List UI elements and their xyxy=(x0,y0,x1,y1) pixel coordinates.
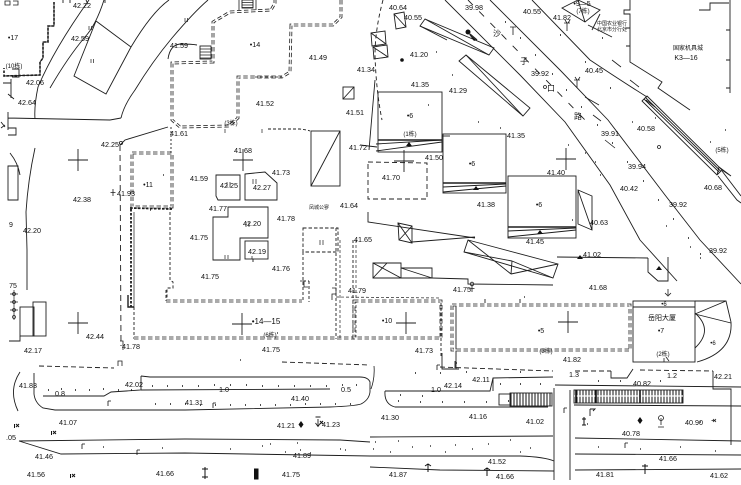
svg-text:39.94: 39.94 xyxy=(628,162,646,171)
svg-text:•6: •6 xyxy=(469,161,475,168)
svg-text:42.25: 42.25 xyxy=(220,181,238,190)
svg-text:41.51: 41.51 xyxy=(346,108,364,117)
svg-text:41.49: 41.49 xyxy=(309,53,327,62)
svg-text:40.58: 40.58 xyxy=(637,124,655,133)
svg-text:路: 路 xyxy=(574,111,582,121)
svg-text:41.75: 41.75 xyxy=(453,285,471,294)
svg-text:0.8: 0.8 xyxy=(55,389,65,398)
svg-text:(10栋): (10栋) xyxy=(6,62,23,70)
svg-text:沙: 沙 xyxy=(493,29,501,38)
svg-text:42.19: 42.19 xyxy=(248,247,266,256)
svg-text:•10: •10 xyxy=(382,318,392,325)
svg-text:•14—15: •14—15 xyxy=(252,317,281,326)
svg-text:41.68: 41.68 xyxy=(589,283,607,292)
svg-text:41.78: 41.78 xyxy=(277,214,295,223)
svg-text:•14: •14 xyxy=(250,40,261,49)
svg-text:(3栋): (3栋) xyxy=(224,119,237,127)
svg-text:41.35: 41.35 xyxy=(411,80,429,89)
svg-text:39.92: 39.92 xyxy=(709,246,727,255)
svg-text:1.0: 1.0 xyxy=(219,385,229,394)
svg-text:41.31: 41.31 xyxy=(185,398,203,407)
svg-text:中国农业银行: 中国农业银行 xyxy=(597,20,627,27)
svg-text:凤城公寥: 凤城公寥 xyxy=(309,204,329,211)
svg-text:41.45: 41.45 xyxy=(526,237,544,246)
svg-text:41.02: 41.02 xyxy=(583,250,601,259)
svg-text:40.45: 40.45 xyxy=(585,66,603,75)
svg-text:40.82: 40.82 xyxy=(633,379,651,388)
svg-text:42.27: 42.27 xyxy=(253,183,271,192)
svg-text:41.75: 41.75 xyxy=(201,272,219,281)
svg-text:•11: •11 xyxy=(143,182,153,189)
svg-text:41.75: 41.75 xyxy=(282,470,300,479)
svg-text:41.75: 41.75 xyxy=(262,345,280,354)
svg-text:41.78: 41.78 xyxy=(122,342,140,351)
svg-text:41.65: 41.65 xyxy=(354,235,372,244)
svg-text:41.73: 41.73 xyxy=(272,168,290,177)
svg-text:41.23: 41.23 xyxy=(322,420,340,429)
svg-text:1.3: 1.3 xyxy=(569,370,579,379)
svg-text:42.44: 42.44 xyxy=(86,332,104,341)
svg-text:岳阳大厦: 岳阳大厦 xyxy=(648,313,676,322)
svg-text:K3—16: K3—16 xyxy=(674,55,697,62)
svg-text:41.61: 41.61 xyxy=(170,129,188,138)
svg-text:41.68: 41.68 xyxy=(234,146,252,155)
svg-text:41.56: 41.56 xyxy=(27,470,45,479)
svg-text:41.34: 41.34 xyxy=(357,65,375,74)
svg-text:•6: •6 xyxy=(661,302,667,308)
svg-text:(7栋): (7栋) xyxy=(576,7,589,15)
svg-text:•6: •6 xyxy=(407,113,413,120)
svg-text:.05: .05 xyxy=(6,433,16,442)
svg-text:42.20: 42.20 xyxy=(243,219,261,228)
svg-text:40.55: 40.55 xyxy=(523,7,541,16)
svg-text:北京市分行处: 北京市分行处 xyxy=(597,26,627,33)
svg-text:1.0: 1.0 xyxy=(431,385,441,394)
svg-text:42.38: 42.38 xyxy=(73,195,91,204)
svg-text:0.5: 0.5 xyxy=(341,385,351,394)
svg-text:39.98: 39.98 xyxy=(465,3,483,12)
svg-text:(2栋): (2栋) xyxy=(656,350,669,358)
svg-text:40.64: 40.64 xyxy=(389,3,407,12)
svg-text:•9—5: •9—5 xyxy=(573,1,590,8)
svg-text:41.02: 41.02 xyxy=(526,417,544,426)
svg-text:41.59: 41.59 xyxy=(190,174,208,183)
svg-text:(3栋): (3栋) xyxy=(539,347,552,355)
svg-text:41.70: 41.70 xyxy=(382,173,400,182)
svg-text:口: 口 xyxy=(547,84,555,93)
svg-text:40.90: 40.90 xyxy=(685,418,703,427)
svg-text:40.78: 40.78 xyxy=(622,429,640,438)
svg-text:41.21: 41.21 xyxy=(277,421,295,430)
svg-text:42.64: 42.64 xyxy=(18,98,36,107)
svg-text:(1栋): (1栋) xyxy=(403,130,416,138)
svg-text:•7: •7 xyxy=(658,328,664,335)
svg-text:42.25: 42.25 xyxy=(101,140,119,149)
svg-text:41.50: 41.50 xyxy=(425,153,443,162)
svg-text:国家机具城: 国家机具城 xyxy=(673,44,703,52)
svg-text:40.55: 40.55 xyxy=(404,13,422,22)
svg-text:41.76: 41.76 xyxy=(272,264,290,273)
svg-text:41.46: 41.46 xyxy=(35,452,53,461)
svg-text:•6: •6 xyxy=(710,341,716,347)
svg-text:•17: •17 xyxy=(8,35,18,42)
svg-text:75: 75 xyxy=(9,283,17,290)
svg-text:42.22: 42.22 xyxy=(73,1,91,10)
svg-text:9: 9 xyxy=(9,222,13,229)
svg-text:41.16: 41.16 xyxy=(469,412,487,421)
svg-text:42.59: 42.59 xyxy=(71,34,89,43)
svg-text:41.52: 41.52 xyxy=(488,457,506,466)
svg-text:41.81: 41.81 xyxy=(596,470,614,479)
svg-text:41.79: 41.79 xyxy=(348,286,366,295)
svg-text:42.20: 42.20 xyxy=(23,226,41,235)
svg-text:41.66: 41.66 xyxy=(659,454,677,463)
svg-text:41.62: 41.62 xyxy=(710,471,728,480)
svg-text:41.66: 41.66 xyxy=(156,469,174,478)
svg-text:(5栋): (5栋) xyxy=(715,146,728,154)
svg-text:42.21: 42.21 xyxy=(714,372,732,381)
svg-text:41.30: 41.30 xyxy=(381,413,399,422)
svg-text:•6: •6 xyxy=(536,202,542,209)
svg-text:40.42: 40.42 xyxy=(620,184,638,193)
svg-text:41.73: 41.73 xyxy=(415,346,433,355)
svg-text:41.89: 41.89 xyxy=(293,451,311,460)
svg-text:41.93: 41.93 xyxy=(117,189,135,198)
svg-text:41.20: 41.20 xyxy=(410,50,428,59)
svg-text:39.92: 39.92 xyxy=(669,200,687,209)
svg-text:41.40: 41.40 xyxy=(291,394,309,403)
svg-text:41.82: 41.82 xyxy=(553,13,571,22)
svg-text:42.11: 42.11 xyxy=(472,375,489,384)
svg-text:41.64: 41.64 xyxy=(340,201,358,210)
svg-text:1.2: 1.2 xyxy=(667,371,677,380)
svg-text:42.14: 42.14 xyxy=(444,381,462,390)
svg-text:41.59: 41.59 xyxy=(170,41,188,50)
svg-text:40.68: 40.68 xyxy=(704,183,722,192)
svg-text:•5: •5 xyxy=(538,328,544,335)
svg-text:41.52: 41.52 xyxy=(256,99,274,108)
svg-text:42.17: 42.17 xyxy=(24,346,42,355)
svg-text:42.06: 42.06 xyxy=(26,78,44,87)
svg-text:41.72: 41.72 xyxy=(349,143,367,152)
svg-text:41.83: 41.83 xyxy=(19,381,37,390)
svg-text:42.02: 42.02 xyxy=(125,380,143,389)
svg-text:41.82: 41.82 xyxy=(563,355,581,364)
svg-text:(6栋): (6栋) xyxy=(263,331,276,339)
svg-text:41.40: 41.40 xyxy=(547,168,565,177)
svg-text:子: 子 xyxy=(520,57,528,66)
svg-text:41.29: 41.29 xyxy=(449,86,467,95)
svg-text:41.77: 41.77 xyxy=(209,204,227,213)
svg-text:41.87: 41.87 xyxy=(389,470,407,479)
svg-text:41.66: 41.66 xyxy=(496,472,514,480)
svg-text:40.63: 40.63 xyxy=(590,218,608,227)
svg-text:41.07: 41.07 xyxy=(59,418,77,427)
svg-text:39.91: 39.91 xyxy=(601,129,619,138)
svg-text:41.75: 41.75 xyxy=(190,233,208,242)
svg-text:41.38: 41.38 xyxy=(477,200,495,209)
svg-text:39.92: 39.92 xyxy=(531,69,549,78)
svg-text:41.35: 41.35 xyxy=(507,131,525,140)
